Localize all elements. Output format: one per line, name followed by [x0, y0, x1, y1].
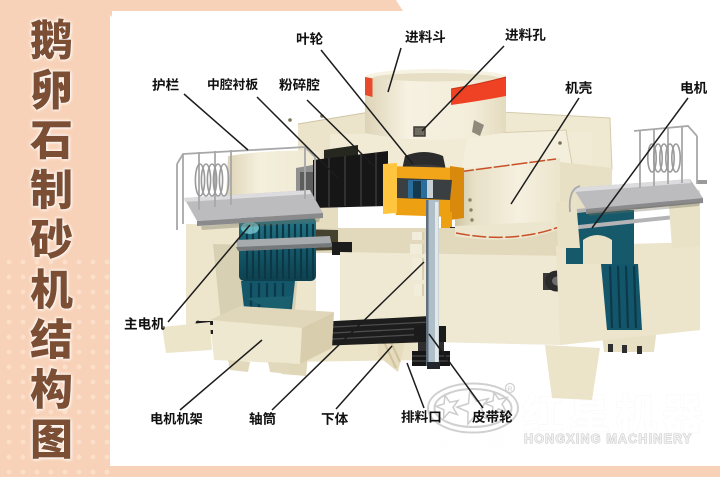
svg-text:R: R — [508, 386, 513, 393]
svg-text:HONGXING MACHINERY: HONGXING MACHINERY — [524, 432, 692, 446]
